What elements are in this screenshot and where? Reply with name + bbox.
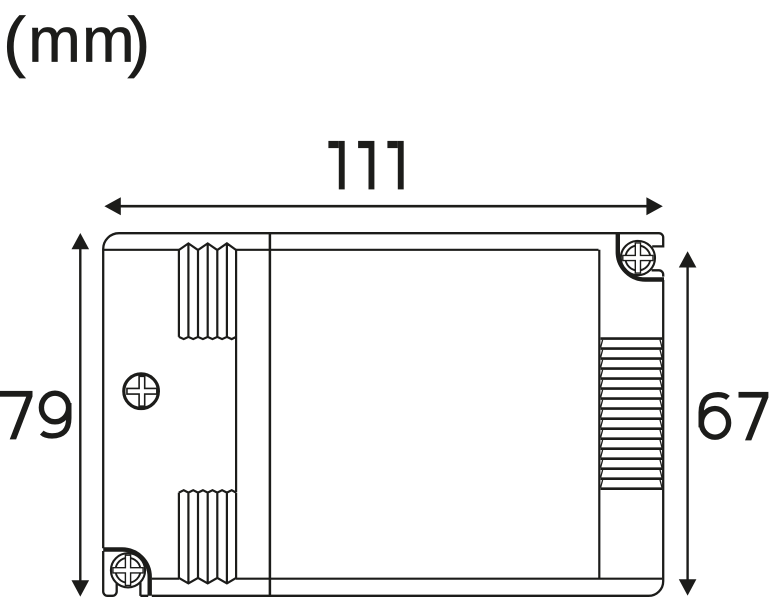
svg-text:(: ( xyxy=(3,4,26,78)
svg-text:mm: mm xyxy=(28,6,136,76)
svg-text:): ) xyxy=(128,4,151,78)
